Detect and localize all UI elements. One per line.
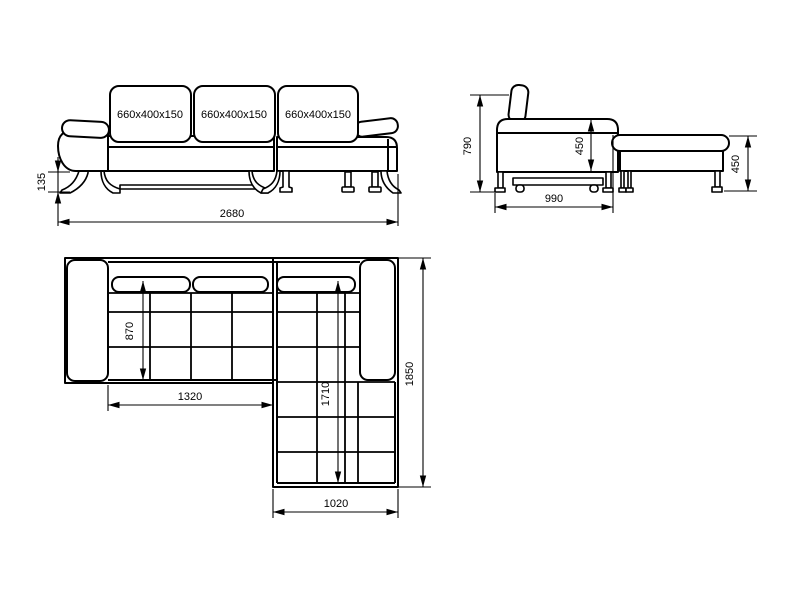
- cushion-size-label-2: 660x400x150: [201, 109, 267, 121]
- plan-back-cushions: [112, 277, 355, 292]
- dim-total-length: 1850: [398, 258, 431, 487]
- sofa-technical-drawing: 660x400x150 660x400x150 660x400x150 135 …: [0, 0, 800, 600]
- plan-back-cushion-3: [277, 277, 355, 292]
- chaise-leg-b-foot: [626, 188, 633, 192]
- side-leg-left-foot: [495, 188, 505, 192]
- dim-label-870: 870: [124, 322, 136, 340]
- dim-label-790: 790: [462, 137, 474, 155]
- plan-back-cushion-1: [112, 277, 190, 292]
- front-view: 660x400x150 660x400x150 660x400x150 135 …: [36, 86, 401, 226]
- front-right-armrest: [354, 117, 399, 137]
- front-leg-mid-b: [280, 171, 292, 192]
- front-bed-frame-bar: [120, 185, 256, 189]
- chaise-leg-a: [621, 171, 624, 188]
- side-leg-left-stem: [498, 172, 503, 188]
- front-legs: [60, 171, 401, 193]
- dim-label-1020: 1020: [324, 498, 348, 510]
- side-back-cushion: [508, 84, 529, 123]
- drawing-canvas: 660x400x150 660x400x150 660x400x150 135 …: [0, 0, 800, 600]
- dim-label-1320: 1320: [178, 391, 202, 403]
- side-view: 790 450 990 450: [462, 84, 757, 213]
- dim-label-450-chaise: 450: [730, 155, 742, 173]
- front-leg-foot-1: [342, 187, 354, 192]
- plan-view: 870 1320 1710 1850 1020: [65, 258, 431, 518]
- front-right-armrest-pillow: [354, 117, 399, 137]
- side-leg-right-stem: [606, 172, 611, 188]
- front-leg-left: [101, 171, 120, 193]
- dim-label-2680: 2680: [220, 208, 244, 220]
- dim-label-135: 135: [36, 173, 48, 191]
- dim-label-450-seat: 450: [574, 137, 586, 155]
- front-leg-armrest-left: [60, 171, 88, 193]
- side-bed-platform: [513, 178, 603, 185]
- chaise-leg-a-foot: [619, 188, 626, 192]
- dim-label-1710: 1710: [320, 382, 332, 406]
- front-leg-mid-a: [261, 171, 280, 193]
- front-back-cushions: 660x400x150 660x400x150 660x400x150: [110, 86, 358, 142]
- side-platform-foot-1: [516, 185, 524, 192]
- dim-label-990: 990: [545, 193, 563, 205]
- cushion-size-label-3: 660x400x150: [285, 109, 351, 121]
- plan-right-armrest: [360, 260, 395, 380]
- front-leg-foot-2: [369, 187, 381, 192]
- chaise-leg-end-foot: [712, 187, 722, 192]
- side-leg-right-foot: [603, 188, 613, 192]
- dim-chaise-width: 1020: [273, 489, 398, 518]
- front-left-armrest-pillow: [62, 120, 110, 138]
- side-body: [497, 119, 618, 172]
- plan-back-cushion-2: [193, 277, 268, 292]
- plan-left-armrest: [67, 260, 108, 381]
- side-platform-foot-2: [590, 185, 598, 192]
- dim-sofa-section-width: 1320: [108, 385, 273, 411]
- dim-label-1850: 1850: [404, 362, 416, 386]
- chaise-leg-b: [628, 171, 631, 188]
- side-chaise-bolster: [612, 135, 729, 151]
- cushion-size-label-1: 660x400x150: [117, 109, 183, 121]
- front-leg-stem-1: [345, 172, 351, 187]
- side-legs: [495, 171, 722, 192]
- chaise-leg-end-stem: [715, 171, 720, 187]
- front-leg-stem-2: [372, 172, 378, 187]
- side-chaise-body: [620, 151, 723, 171]
- front-left-armrest: [58, 120, 109, 171]
